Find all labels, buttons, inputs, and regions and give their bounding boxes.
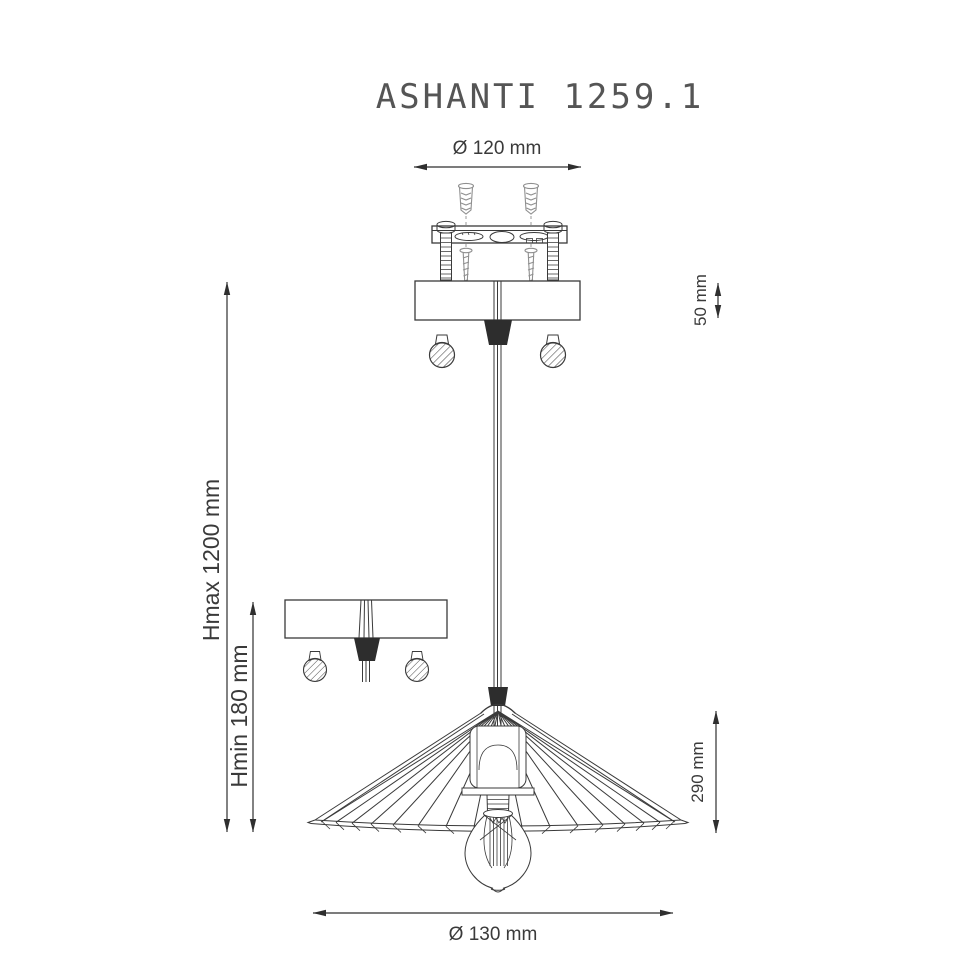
detail-dome-nut-left [304, 652, 327, 682]
dim-shade-height-label: 290 mm [688, 741, 707, 802]
dim-top-diameter: Ø 120 mm [414, 138, 581, 167]
shade-cord-grip [488, 687, 508, 706]
dim-shade-diameter-label: Ø 130 mm [449, 924, 538, 945]
detail-dome-nut-right [406, 652, 429, 682]
wall-anchor-left [459, 183, 474, 214]
page-title: ASHANTI 1259.1 [376, 77, 705, 117]
dim-hmax-label: Hmax 1200 mm [198, 479, 224, 641]
wall-anchor-right [524, 183, 539, 214]
dome-nut-right [541, 335, 566, 368]
canopy-detail [285, 600, 447, 682]
dim-hmin-label: Hmin 180 mm [226, 644, 252, 787]
detail-cord-grip [354, 638, 380, 661]
dim-hmax: Hmax 1200 mm [198, 282, 227, 832]
cord-grip [484, 320, 512, 345]
lampshade [308, 687, 688, 892]
dim-hmin: Hmin 180 mm [226, 602, 253, 832]
dome-nut-left [430, 335, 455, 368]
suspension-cord [494, 345, 501, 687]
lamp-socket [462, 726, 534, 812]
mounting-bar [432, 226, 567, 243]
dim-top-diameter-label: Ø 120 mm [453, 138, 542, 159]
dim-canopy-height: 50 mm [691, 274, 718, 326]
mount-assembly [432, 183, 567, 290]
dim-canopy-height-label: 50 mm [691, 274, 710, 326]
technical-drawing: ASHANTI 1259.1 Ø 120 mm [0, 0, 970, 970]
dim-shade-diameter: Ø 130 mm [313, 913, 673, 945]
diagram-canvas: ASHANTI 1259.1 Ø 120 mm [0, 0, 970, 970]
dim-shade-height: 290 mm [688, 711, 716, 833]
